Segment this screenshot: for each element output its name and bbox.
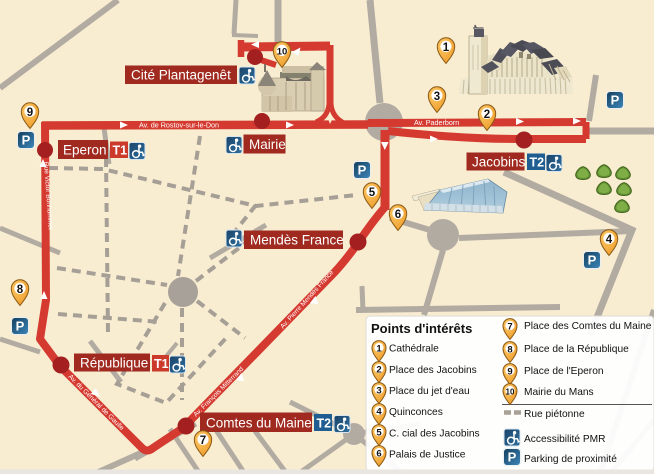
svg-text:9: 9 <box>507 367 512 378</box>
svg-text:Place du jet d'eau: Place du jet d'eau <box>389 386 470 397</box>
svg-text:7: 7 <box>200 435 206 447</box>
svg-text:3: 3 <box>376 386 381 397</box>
svg-text:8: 8 <box>507 345 512 356</box>
svg-text:Quinconces: Quinconces <box>389 407 443 418</box>
svg-text:4: 4 <box>606 234 613 246</box>
svg-text:Accessibilité PMR: Accessibilité PMR <box>524 434 606 445</box>
svg-text:Place des Jacobins: Place des Jacobins <box>389 365 477 376</box>
svg-text:Cité Plantagenêt: Cité Plantagenêt <box>131 68 231 83</box>
svg-text:Rue piétonne: Rue piétonne <box>524 409 585 420</box>
svg-text:10: 10 <box>506 388 515 397</box>
svg-text:1: 1 <box>376 344 382 355</box>
svg-text:2: 2 <box>484 109 490 121</box>
svg-text:Mairie du Mans: Mairie du Mans <box>524 387 594 398</box>
svg-text:Place des Comtes du Maine: Place des Comtes du Maine <box>524 321 652 332</box>
svg-text:Cathédrale: Cathédrale <box>389 344 439 355</box>
svg-text:4: 4 <box>376 407 382 418</box>
svg-text:2: 2 <box>376 365 381 376</box>
svg-text:Place de l'Eperon: Place de l'Eperon <box>524 366 604 377</box>
svg-text:Palais de Justice: Palais de Justice <box>389 450 466 461</box>
svg-text:9: 9 <box>27 107 33 119</box>
svg-text:3: 3 <box>434 91 440 103</box>
svg-text:8: 8 <box>17 284 24 296</box>
svg-text:Mendès France: Mendès France <box>250 233 344 248</box>
svg-text:Mairie: Mairie <box>249 137 286 152</box>
svg-text:Av. de Rostov-sur-le-Don: Av. de Rostov-sur-le-Don <box>139 121 219 130</box>
svg-text:6: 6 <box>376 449 381 460</box>
svg-text:1: 1 <box>443 42 450 54</box>
svg-text:T1: T1 <box>113 144 128 158</box>
svg-text:Jacobins: Jacobins <box>472 155 526 170</box>
svg-text:10: 10 <box>277 47 288 58</box>
svg-text:6: 6 <box>395 209 401 221</box>
svg-text:Comtes du Maine: Comtes du Maine <box>206 416 312 431</box>
svg-text:T2: T2 <box>317 417 332 431</box>
svg-text:République: République <box>80 356 148 371</box>
svg-text:Eperon: Eperon <box>63 143 107 158</box>
svg-text:T2: T2 <box>530 156 545 170</box>
svg-text:Av. Paderborn: Av. Paderborn <box>414 118 459 127</box>
svg-text:Place de la République: Place de la République <box>524 344 629 355</box>
svg-text:C. cial des Jacobins: C. cial des Jacobins <box>389 429 480 440</box>
svg-text:5: 5 <box>369 187 376 199</box>
svg-text:Points d'intérêts: Points d'intérêts <box>371 321 472 336</box>
svg-text:7: 7 <box>507 322 512 333</box>
svg-text:T1: T1 <box>154 357 169 371</box>
svg-text:Parking de proximité: Parking de proximité <box>524 454 617 465</box>
svg-text:5: 5 <box>376 428 382 439</box>
